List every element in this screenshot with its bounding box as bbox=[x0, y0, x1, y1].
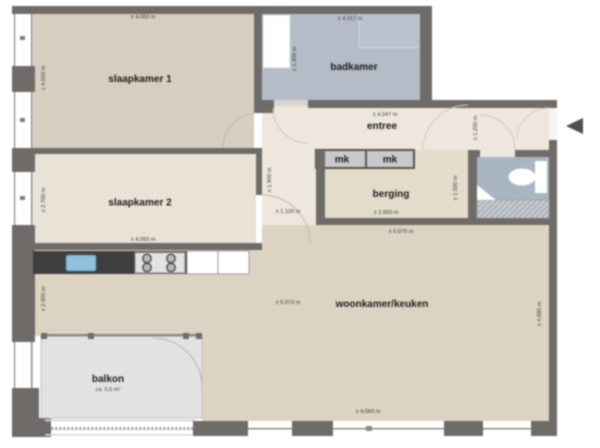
svg-text:± 1.300 m: ± 1.300 m bbox=[292, 46, 298, 71]
svg-text:± 4.347 m: ± 4.347 m bbox=[373, 112, 398, 118]
svg-text:± 4.060 m: ± 4.060 m bbox=[356, 409, 381, 415]
svg-text:badkamer: badkamer bbox=[330, 62, 377, 73]
svg-text:balkon: balkon bbox=[92, 374, 124, 385]
svg-text:mk: mk bbox=[335, 155, 350, 166]
svg-text:woonkamer/keuken: woonkamer/keuken bbox=[335, 299, 429, 310]
svg-text:± 1.900 m: ± 1.900 m bbox=[267, 167, 273, 192]
svg-text:± 6.070 m: ± 6.070 m bbox=[276, 300, 301, 306]
svg-text:± 6.070 m: ± 6.070 m bbox=[389, 229, 414, 235]
svg-text:slaapkamer 2: slaapkamer 2 bbox=[108, 198, 172, 209]
svg-text:berging: berging bbox=[373, 189, 410, 200]
svg-text:entree: entree bbox=[367, 121, 397, 132]
svg-text:± 4.880 m: ± 4.880 m bbox=[537, 301, 543, 326]
svg-text:± 2.700 m: ± 2.700 m bbox=[41, 187, 47, 212]
svg-text:± 4.317 m: ± 4.317 m bbox=[338, 16, 363, 22]
svg-text:± 1.200 m: ± 1.200 m bbox=[473, 115, 479, 140]
svg-text:ca. 5,5 m²: ca. 5,5 m² bbox=[96, 387, 121, 393]
svg-text:± 4.060 m: ± 4.060 m bbox=[131, 237, 156, 243]
svg-text:± 1.100 m: ± 1.100 m bbox=[276, 209, 301, 215]
svg-text:slaapkamer 1: slaapkamer 1 bbox=[108, 74, 172, 85]
svg-text:mk: mk bbox=[383, 155, 398, 166]
svg-text:± 4.000 m: ± 4.000 m bbox=[41, 65, 47, 90]
svg-text:± 1.500 m: ± 1.500 m bbox=[453, 175, 459, 200]
svg-text:± 2.600 m: ± 2.600 m bbox=[374, 210, 399, 216]
svg-text:± 4.060 m: ± 4.060 m bbox=[131, 15, 156, 21]
svg-text:± 2.900 m: ± 2.900 m bbox=[41, 286, 47, 311]
